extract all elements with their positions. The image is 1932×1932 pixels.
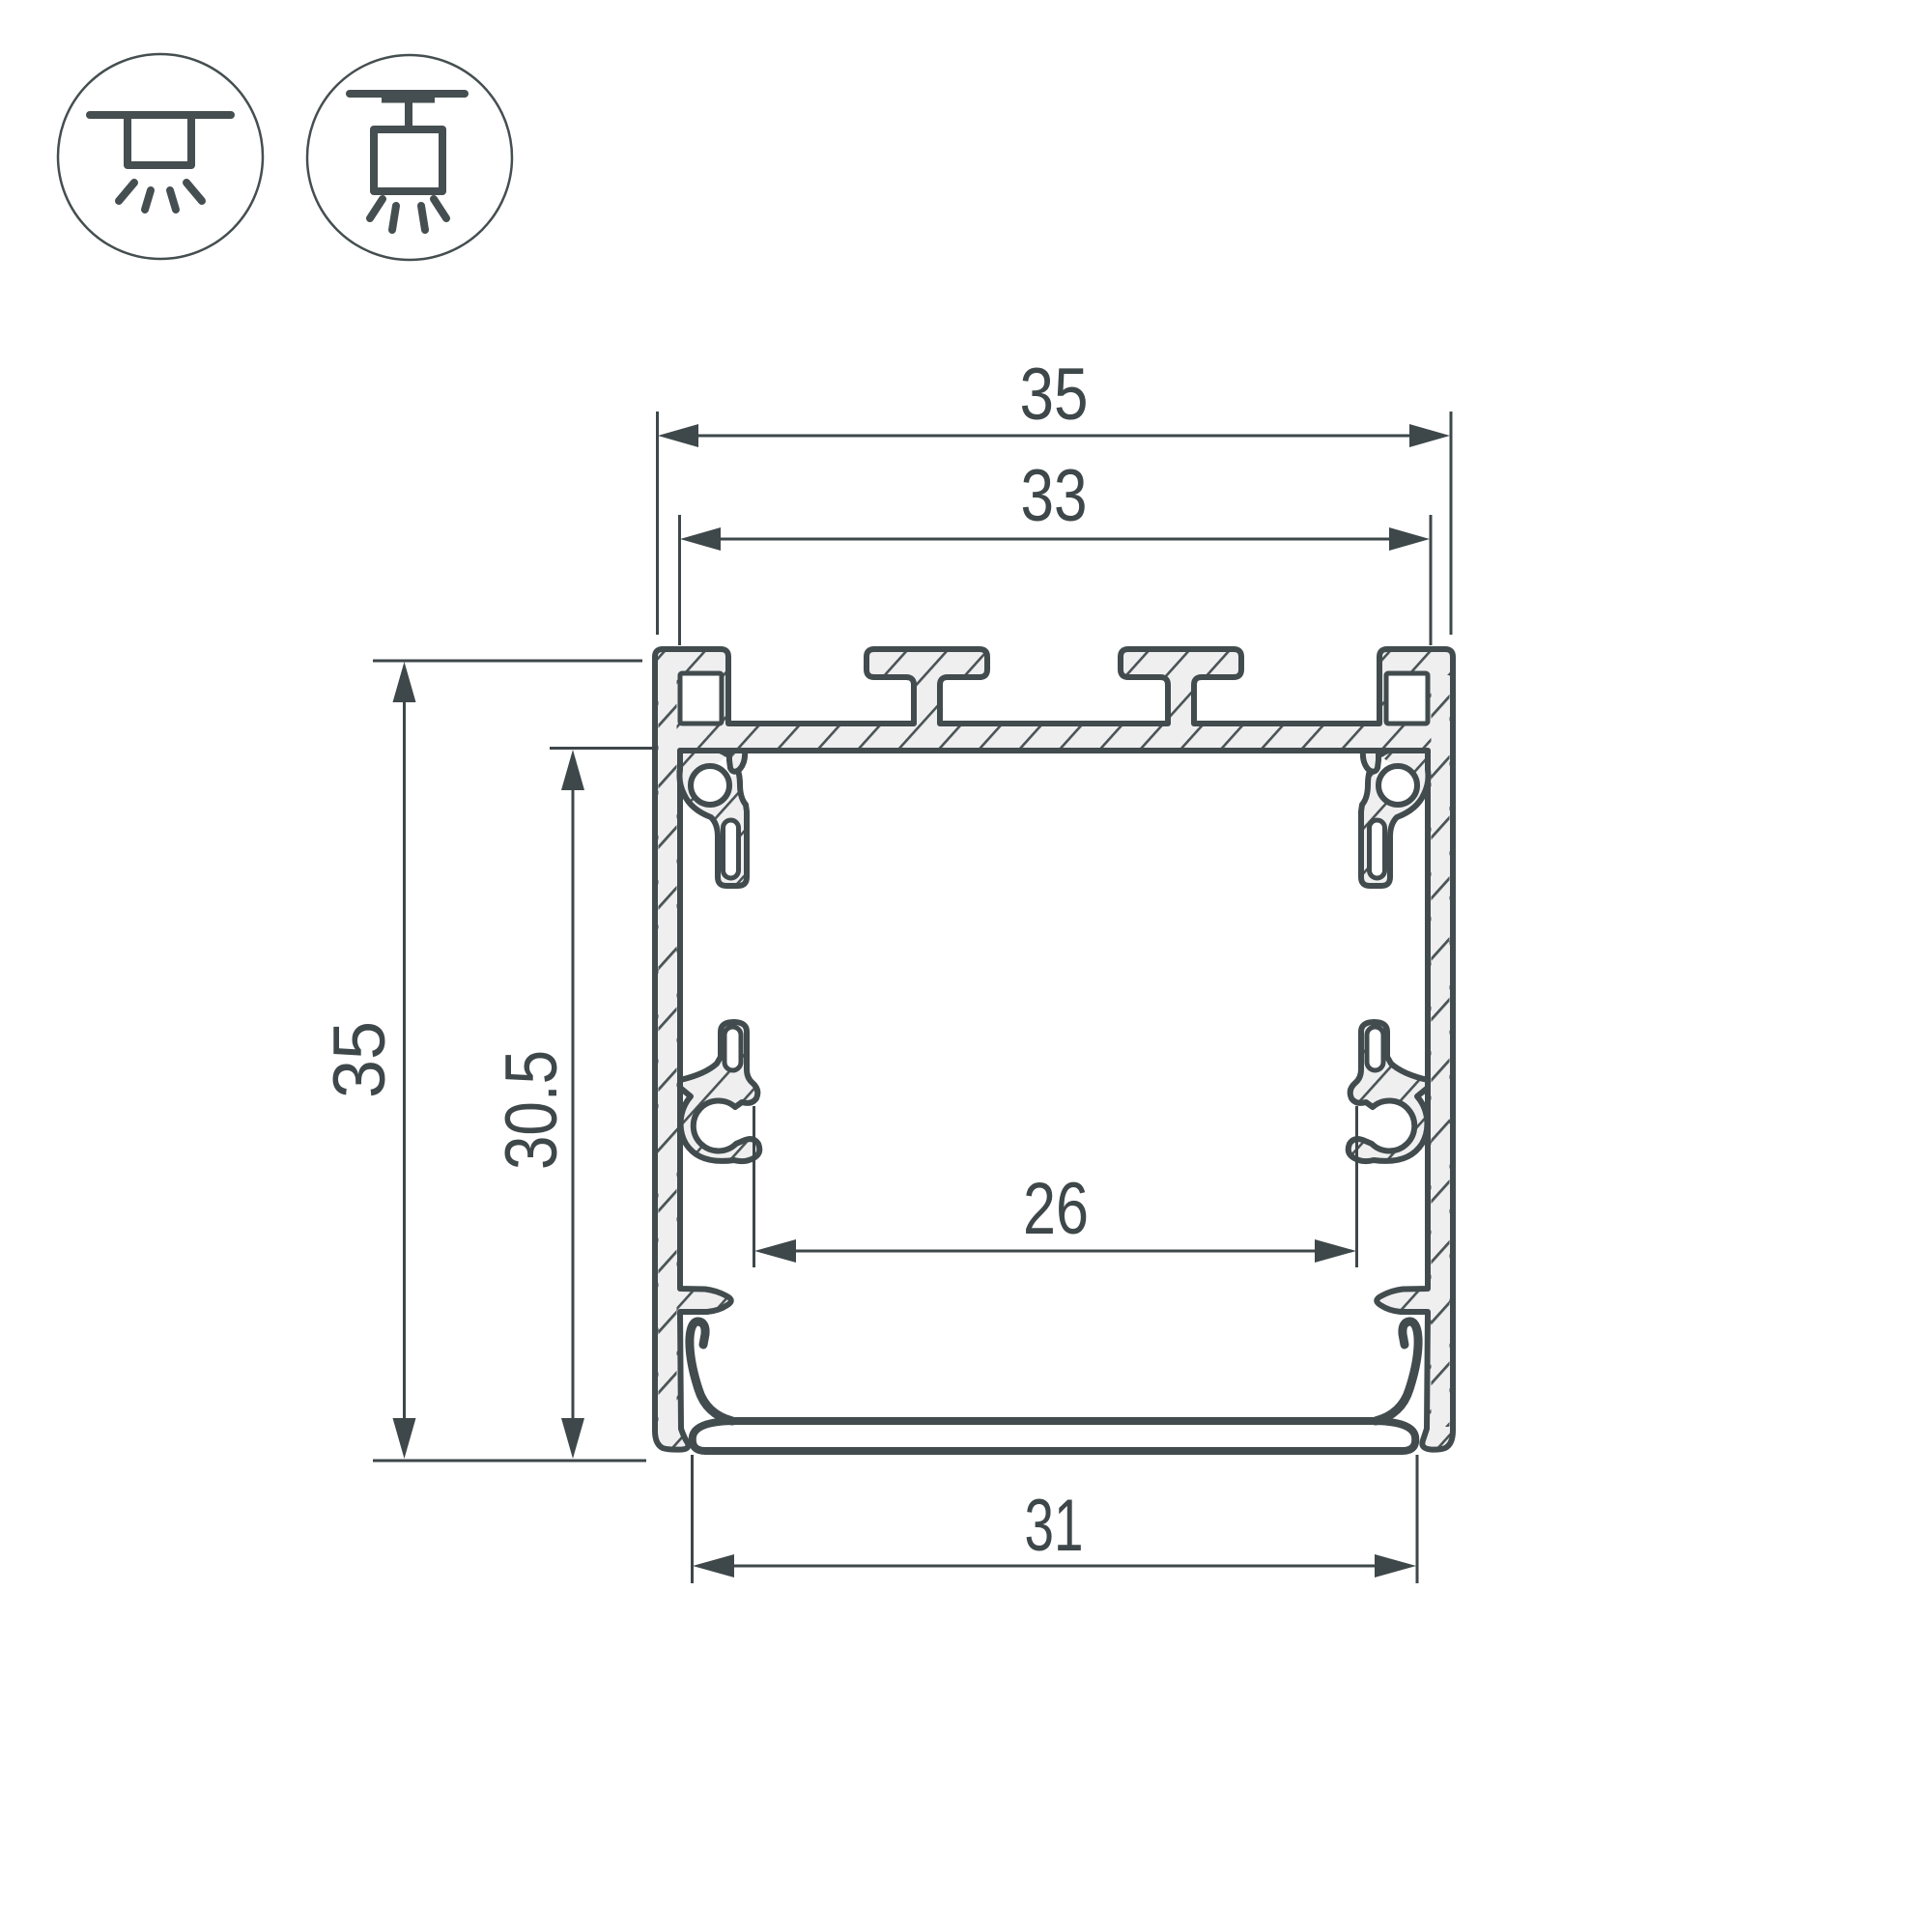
svg-text:31: 31	[1025, 1485, 1084, 1567]
svg-text:35: 35	[1020, 354, 1089, 436]
svg-text:26: 26	[1023, 1168, 1089, 1250]
svg-text:30.5: 30.5	[491, 1050, 573, 1170]
svg-text:35: 35	[319, 1021, 401, 1098]
svg-text:33: 33	[1021, 455, 1088, 537]
